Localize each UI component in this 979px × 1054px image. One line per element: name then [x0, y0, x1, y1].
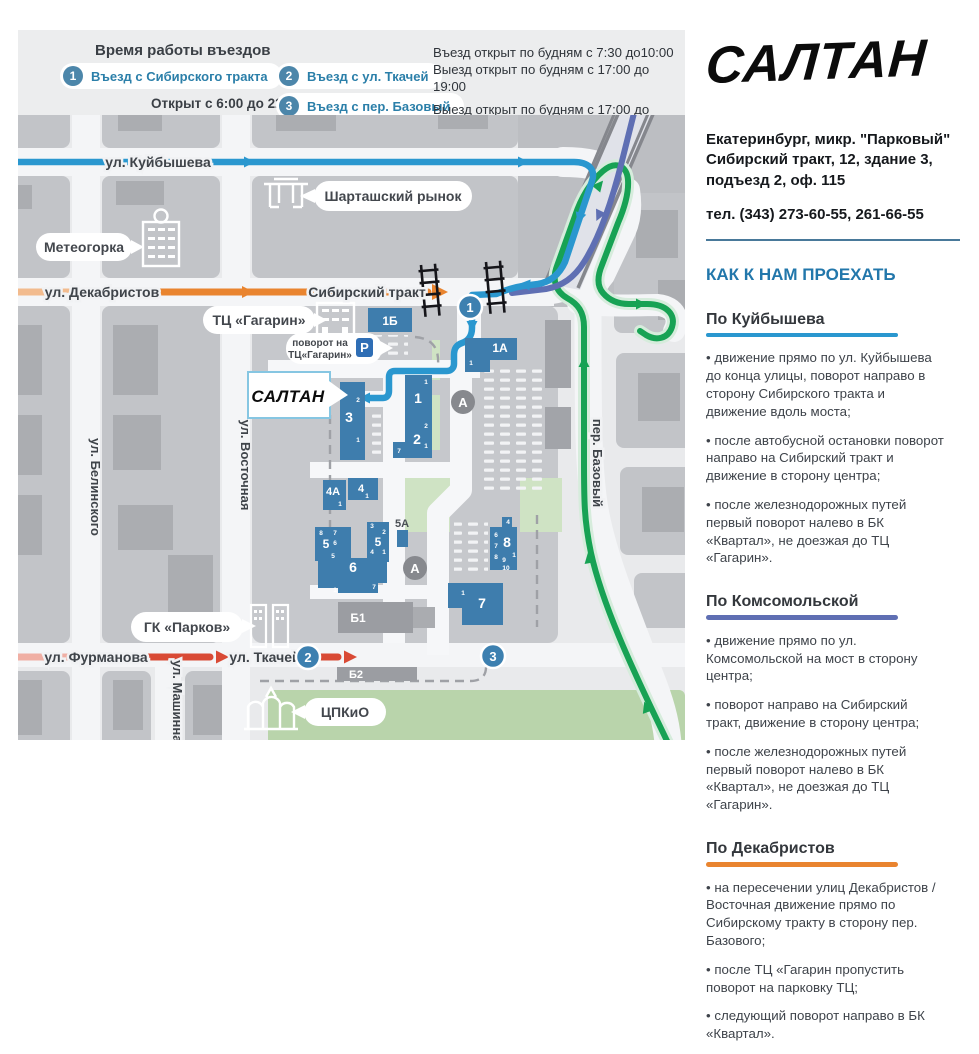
building-8-label: 8 [503, 534, 511, 550]
building-6-label: 6 [349, 559, 357, 575]
street-kuibysheva: ул. Куйбышева [105, 154, 211, 170]
section-komsomolskaya-underline [706, 615, 898, 620]
svg-text:8: 8 [319, 530, 323, 537]
bullet: после ТЦ «Гагарин пропустить поворот на … [706, 961, 946, 997]
bullet: движение прямо по ул. Куйбышева до конца… [706, 349, 946, 420]
building-b2-label: Б2 [349, 669, 363, 681]
entry-3-label: Въезд с пер. Базовый [307, 99, 450, 114]
svg-text:6: 6 [494, 532, 498, 539]
svg-text:9: 9 [502, 557, 506, 564]
entry-1-badge: 1 [63, 66, 83, 86]
svg-text:6: 6 [333, 540, 337, 547]
street-bazovy: пер. Базовый [590, 419, 605, 507]
saltan-callout-label: САЛТАН [251, 387, 325, 406]
section-dekabristov-heading: По Декабристов [706, 840, 960, 858]
svg-text:1: 1 [333, 587, 337, 594]
svg-text:1: 1 [469, 360, 473, 367]
company-phone: тел. (343) 273-60-55, 261-66-55 [706, 206, 960, 223]
svg-text:1: 1 [338, 501, 342, 508]
section-komsomolskaya-heading: По Комсомольской [706, 593, 960, 611]
svg-text:2: 2 [424, 423, 428, 430]
building-5r-label: 5 [375, 535, 382, 549]
building-5a [397, 530, 408, 547]
bullet: поворот направо на Сибирский тракт, движ… [706, 696, 946, 732]
building-1a-label: 1А [492, 341, 508, 355]
map-panel: Время работы въездов 1 Въезд с Сибирског… [18, 30, 685, 740]
building-4-label: 4 [358, 483, 365, 495]
entry-1-label: Въезд с Сибирского тракта [91, 69, 268, 84]
svg-text:2: 2 [356, 397, 360, 404]
svg-text:2: 2 [304, 650, 311, 665]
svg-text:1: 1 [424, 379, 428, 386]
street-furmanova: ул. Фурманова [44, 649, 148, 665]
section-dekabristov: По Декабристов на пересечении улиц Декаб… [706, 840, 960, 1043]
building-4a-label: 4А [326, 486, 340, 498]
svg-text:7: 7 [372, 584, 376, 591]
svg-text:8: 8 [494, 554, 498, 561]
svg-text:5: 5 [331, 553, 335, 560]
bus-stop-a1-label: А [458, 395, 468, 410]
svg-text:ТЦ «Гагарин»: ТЦ «Гагарин» [212, 312, 305, 328]
bullet: на пересечении улиц Декабристов / Восточ… [706, 879, 946, 950]
svg-text:2: 2 [382, 529, 386, 536]
section-dekabristov-underline [706, 862, 898, 867]
svg-text:1: 1 [461, 590, 465, 597]
svg-text:Шарташский рынок: Шарташский рынок [325, 188, 463, 204]
callout-shartash: Шарташский рынок [300, 181, 472, 211]
bullet: после железнодорожных путей первый повор… [706, 743, 946, 814]
callout-parkov: ГК «Парков» [131, 612, 256, 642]
section-komsomolskaya: По Комсомольской движение прямо по ул. К… [706, 593, 960, 814]
address-line-1: Екатеринбург, микр. "Парковый" [706, 130, 960, 150]
divider-line [706, 239, 960, 241]
svg-text:1: 1 [382, 549, 386, 556]
svg-text:3: 3 [489, 649, 496, 664]
svg-text:P: P [360, 340, 369, 355]
building-1-label: 1 [414, 390, 422, 406]
svg-text:поворот на: поворот на [292, 338, 348, 349]
parking-icon: P [356, 338, 373, 357]
street-tkachey: ул. Ткачей [229, 649, 300, 665]
legend-title: Время работы въездов [95, 42, 271, 59]
callout-gagarin: ТЦ «Гагарин» [203, 306, 327, 334]
svg-text:Метеогорка: Метеогорка [44, 239, 124, 255]
address-line-2: Сибирский тракт, 12, здание 3, [706, 150, 960, 170]
bullet: следующий поворот направо в БК «Квартал»… [706, 1007, 946, 1043]
svg-text:3: 3 [370, 523, 374, 530]
street-belinskogo: ул. Белинского [88, 438, 103, 536]
svg-text:7: 7 [397, 448, 401, 455]
street-sibirsky: Сибирский тракт [308, 284, 426, 300]
legend-entry-1: 1 Въезд с Сибирского тракта [60, 63, 282, 89]
svg-text:ТЦ«Гагарин»: ТЦ«Гагарин» [288, 350, 352, 361]
svg-text:4: 4 [506, 519, 510, 526]
svg-text:ГК «Парков»: ГК «Парков» [144, 619, 231, 635]
legend-entry-2: 2 Въезд с ул. Ткачей [276, 63, 442, 89]
building-b1-label: Б1 [350, 611, 366, 625]
building-5l-label: 5 [323, 537, 330, 551]
svg-text:10: 10 [502, 565, 510, 572]
address-line-3: подъезд 2, оф. 115 [706, 171, 960, 191]
street-vostochnaya: ул. Восточная [238, 420, 253, 511]
entry-2-badge: 2 [279, 66, 299, 86]
city-map: 1Б 1А 1 2 3 4А 4 5 5 5А 6 7 8 Б1 Б2 1 1 … [18, 115, 685, 740]
entry-2-label: Въезд с ул. Ткачей [307, 69, 428, 84]
building-5a-label: 5А [395, 518, 409, 530]
directions-title: КАК К НАМ ПРОЕХАТЬ [706, 265, 960, 285]
building-b1 [338, 602, 413, 633]
hours-line-2: Выезд открыт по будням с 17:00 до 19:00 [433, 61, 685, 95]
callout-gagarin-turn: поворот на ТЦ«Гагарин» P [286, 333, 393, 364]
hours-line-1: Въезд открыт по будням с 7:30 до10:00 [433, 44, 685, 61]
svg-text:ЦПКиО: ЦПКиО [321, 704, 369, 720]
building-7-label: 7 [478, 595, 486, 611]
bullet: после автобусной остановки поворот напра… [706, 432, 946, 485]
street-dekabristov: ул. Декабристов [45, 284, 160, 300]
sidebar: САЛТАН Екатеринбург, микр. "Парковый" Си… [706, 30, 960, 1054]
svg-text:7: 7 [494, 543, 498, 550]
bullet: после железнодорожных путей первый повор… [706, 496, 946, 567]
building-1b-label: 1Б [382, 314, 398, 328]
company-logo: САЛТАН [704, 27, 960, 96]
entry-3-badge: 3 [279, 96, 299, 116]
bus-stop-a2-label: А [410, 561, 420, 576]
bullet: движение прямо по ул. Комсомольской на м… [706, 632, 946, 685]
building-3-label: 3 [345, 409, 353, 425]
svg-text:1: 1 [466, 300, 473, 315]
company-address: Екатеринбург, микр. "Парковый" Сибирский… [706, 130, 960, 191]
svg-text:1: 1 [512, 552, 516, 559]
section-kuibysheva: По Куйбышева движение прямо по ул. Куйбы… [706, 311, 960, 567]
section-kuibysheva-underline [706, 333, 898, 338]
svg-text:1: 1 [356, 437, 360, 444]
callout-meteogorka: Метеогорка [36, 233, 144, 261]
building-2-label: 2 [413, 431, 421, 447]
section-kuibysheva-heading: По Куйбышева [706, 311, 960, 329]
svg-text:4: 4 [370, 549, 374, 556]
svg-text:1: 1 [424, 443, 428, 450]
svg-text:1: 1 [365, 493, 369, 500]
street-mashinnaya: ул. Машинная [170, 660, 185, 740]
svg-text:7: 7 [333, 530, 337, 537]
